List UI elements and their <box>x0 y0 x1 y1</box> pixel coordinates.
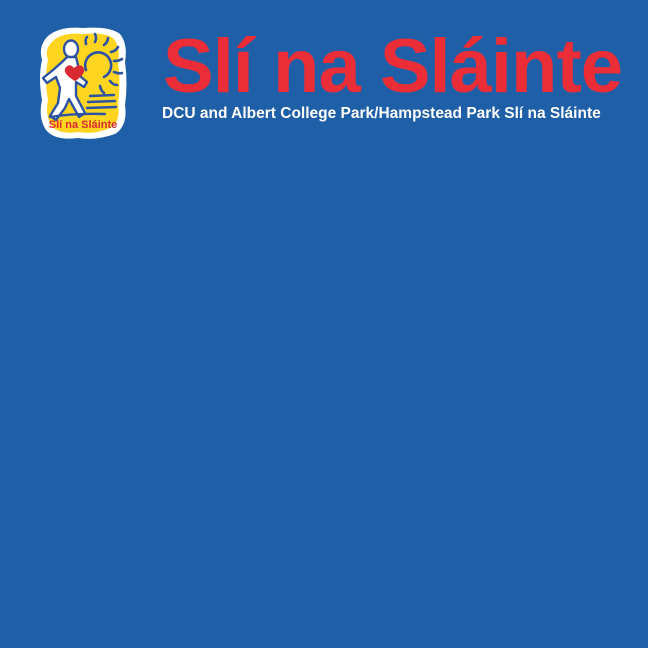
svg-text:Slí na Sláinte: Slí na Sláinte <box>49 119 117 131</box>
svg-text:DCU and Albert College Park/Ha: DCU and Albert College Park/Hampstead Pa… <box>162 105 601 122</box>
svg-text:Slí na Sláinte: Slí na Sláinte <box>163 24 622 109</box>
